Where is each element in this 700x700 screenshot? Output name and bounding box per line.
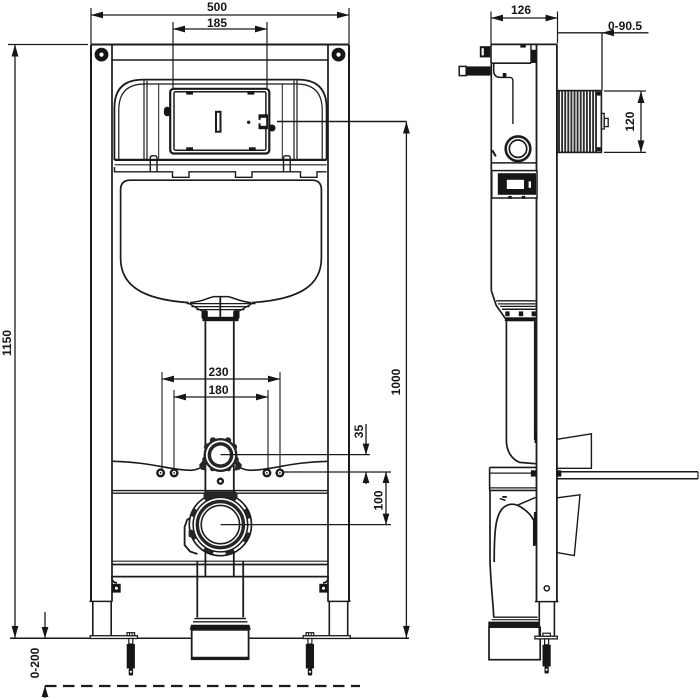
svg-text:35: 35 bbox=[352, 425, 366, 439]
svg-text:1000: 1000 bbox=[389, 368, 403, 395]
svg-text:0-90.5: 0-90.5 bbox=[608, 19, 642, 33]
svg-text:126: 126 bbox=[511, 3, 531, 17]
svg-text:185: 185 bbox=[207, 16, 227, 30]
svg-text:180: 180 bbox=[208, 383, 228, 397]
svg-text:0-200: 0-200 bbox=[28, 647, 42, 678]
svg-text:500: 500 bbox=[207, 0, 227, 14]
svg-text:1150: 1150 bbox=[0, 330, 14, 356]
svg-text:120: 120 bbox=[623, 111, 637, 131]
svg-text:100: 100 bbox=[372, 490, 386, 510]
svg-text:230: 230 bbox=[208, 365, 228, 379]
